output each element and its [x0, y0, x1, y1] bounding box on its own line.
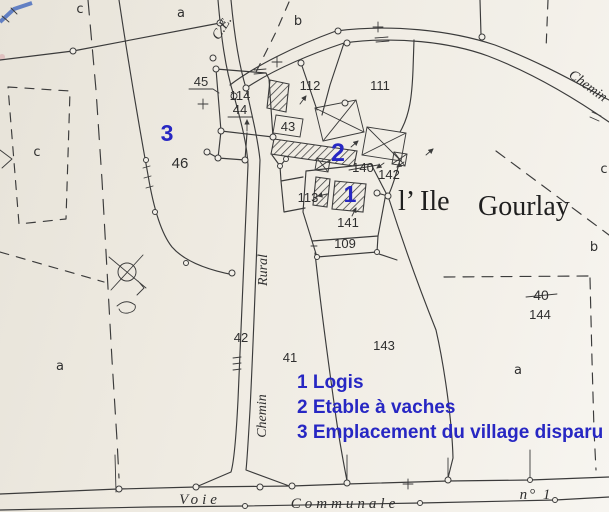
road-label-ce: C.E. [209, 14, 235, 43]
parcel-number-46: 46 [172, 155, 189, 172]
parcel-number-114: 114 [230, 88, 251, 103]
road-label-chemin-top: Chemin [566, 68, 609, 106]
section-letter-c-left: c [33, 145, 40, 160]
parcel-number-43: 43 [281, 119, 295, 134]
place-name-gourlay: Gourlay [478, 191, 570, 222]
road-label-communale: Communale [291, 496, 400, 512]
blue-mark-2: 2 [331, 139, 345, 167]
crossed-circle-symbol [109, 255, 146, 295]
parcel-number-109: 109 [334, 236, 356, 251]
parcel-number-113: 113 [298, 190, 319, 205]
parcel-number-45: 45 [194, 74, 208, 89]
road-label-voie: Voie [179, 492, 221, 508]
parcel-number-142: 142 [378, 167, 400, 182]
building-north-hatched [267, 80, 289, 112]
section-letter-c-right: c [600, 162, 607, 177]
legend-line-village: 3 Emplacement du village disparu [297, 422, 603, 443]
legend-line-logis: 1 Logis [297, 372, 364, 393]
parcel-number-40-struck: 40 [533, 287, 549, 303]
parcel-number-42: 42 [234, 330, 248, 345]
parcel-number-44: 44 [233, 102, 247, 117]
section-letter-a-bottom-right: a [514, 363, 522, 378]
blue-mark-1: 1 [344, 181, 357, 207]
parcel-number-143: 143 [373, 338, 395, 353]
section-letter-a-bottom-left: a [56, 359, 64, 374]
road-label-rural: Rural [256, 254, 271, 287]
map-canvas: c a b c c b a a 45 114 44 43 112 111 46 … [0, 0, 609, 512]
blue-mark-3: 3 [161, 120, 174, 146]
parcel-number-111: 111 [370, 78, 390, 93]
scan-artifact-blue-corner [0, 3, 32, 60]
legend-line-etable: 2 Etable à vaches [297, 397, 455, 418]
hook-symbol [117, 302, 135, 313]
parcel-number-112: 112 [300, 78, 321, 93]
parcel-number-140-struck: 140 [352, 160, 374, 175]
section-letter-c-top: c [76, 2, 83, 17]
parcel-number-141: 141 [337, 215, 359, 230]
parcel-number-144: 144 [529, 307, 551, 322]
place-name-ile: l’ Ile [398, 186, 450, 217]
section-letter-b-top: b [294, 14, 302, 29]
road-label-numero-1: n° 1 [520, 487, 553, 503]
section-letter-a-top: a [177, 6, 185, 21]
road-label-chemin-vertical: Chemin [255, 394, 270, 438]
section-letter-b-right: b [590, 240, 598, 255]
cadastral-map-scan: c a b c c b a a 45 114 44 43 112 111 46 … [0, 0, 609, 512]
parcel-number-41: 41 [283, 350, 297, 365]
